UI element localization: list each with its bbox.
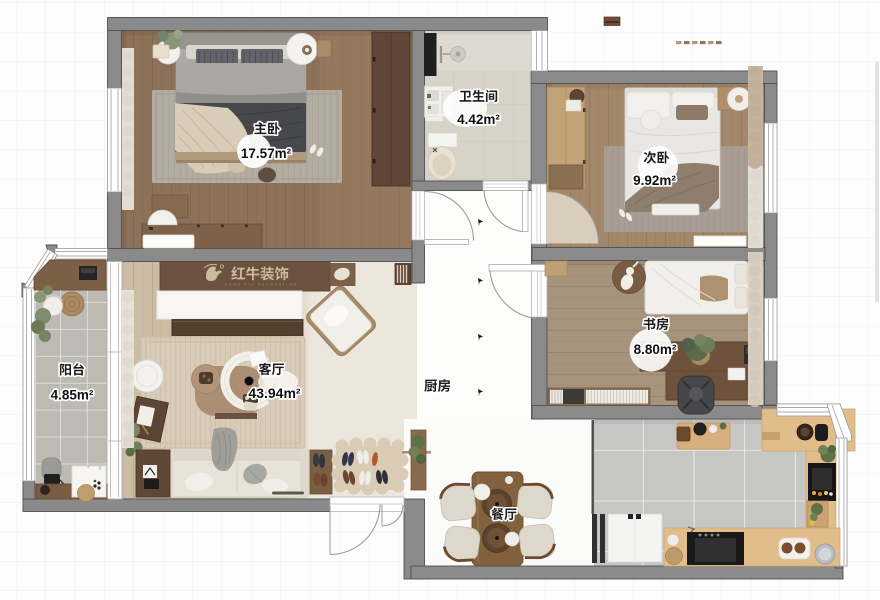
svg-text:17.57m²: 17.57m² (241, 146, 292, 161)
svg-text:43.94m²: 43.94m² (248, 385, 300, 401)
svg-text:9.92m²: 9.92m² (633, 173, 676, 188)
svg-text:4.42m²: 4.42m² (457, 112, 500, 127)
svg-text:4.85m²: 4.85m² (51, 387, 94, 402)
svg-text:HONG NIU DECORATION: HONG NIU DECORATION (224, 283, 297, 287)
svg-text:8.80m²: 8.80m² (634, 342, 677, 357)
